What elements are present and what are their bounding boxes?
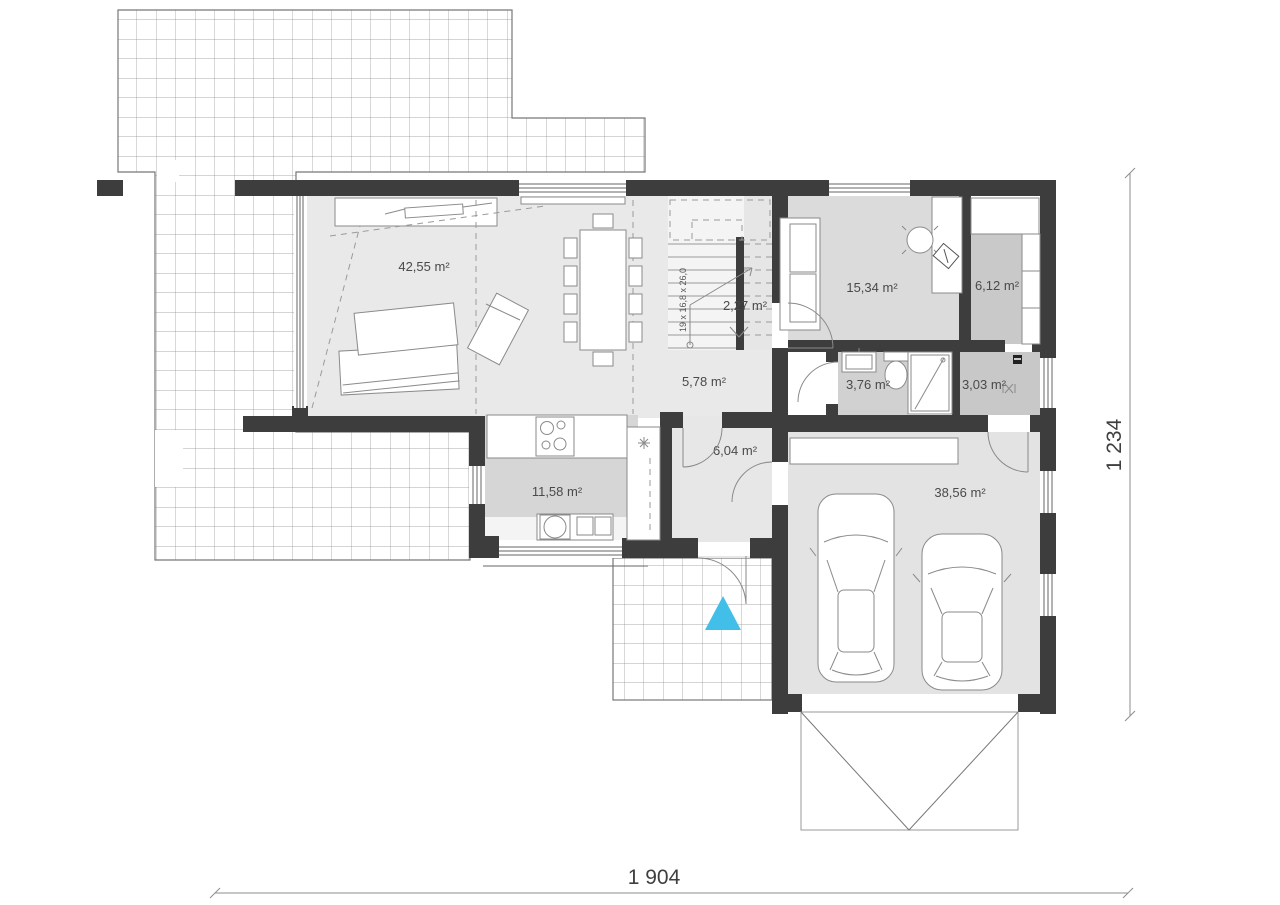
- cooktop: [536, 417, 574, 456]
- floor-plan-svg: 42,55 m² 19 x 16,8 x 26,0 2,27 m² 5,78 m…: [0, 0, 1280, 905]
- window-east-garage-1: [1040, 466, 1056, 518]
- garage-door: [801, 712, 1018, 830]
- kitchen-sink-counter: [537, 514, 613, 540]
- office-sofa: [780, 218, 820, 330]
- window-west-kitchen: [469, 466, 485, 504]
- door-bathroom: [798, 362, 838, 402]
- office-area-label: 15,34 m²: [846, 280, 898, 295]
- utility-area-label: 3,03 m²: [962, 377, 1007, 392]
- desk: [932, 197, 962, 293]
- kitchen-area-label: 11,58 m²: [532, 484, 583, 499]
- stairwell-area-label: 2,27 m²: [723, 298, 768, 313]
- dimension-bottom-label: 1 904: [628, 866, 681, 889]
- window-north-1: [519, 180, 626, 204]
- window-east-bath: [1040, 358, 1056, 408]
- dimension-bottom: 1 904: [210, 866, 1133, 898]
- sink: [842, 348, 876, 372]
- car-left: [810, 494, 902, 682]
- hall-area-label: 5,78 m²: [682, 374, 727, 389]
- bathroom-area-label: 3,76 m²: [846, 377, 891, 392]
- garage-shelf: [790, 438, 958, 464]
- dimension-right: 1 234: [1103, 168, 1135, 721]
- vestibule-area-label: 6,04 m²: [713, 443, 758, 458]
- terrace-entrance: [613, 558, 772, 700]
- garage-area-label: 38,56 m²: [934, 485, 986, 500]
- window-north-2: [829, 180, 910, 196]
- living-room-area-label: 42,55 m²: [398, 259, 450, 274]
- stair-dimensions-label: 19 x 16,8 x 26,0: [678, 268, 688, 332]
- fridge: [627, 427, 660, 540]
- floor-plan-page: 42,55 m² 19 x 16,8 x 26,0 2,27 m² 5,78 m…: [0, 0, 1280, 905]
- car-right: [913, 534, 1011, 690]
- vestibule: 6,04 m²: [713, 443, 758, 458]
- window-west-living: [294, 196, 306, 408]
- dimension-right-label: 1 234: [1103, 418, 1126, 471]
- wardrobe-area-label: 6,12 m²: [975, 278, 1020, 293]
- tv-cabinet: [335, 198, 497, 226]
- window-east-garage-2: [1040, 569, 1056, 621]
- bathroom: 3,76 m²: [842, 348, 908, 392]
- shower: [908, 352, 952, 414]
